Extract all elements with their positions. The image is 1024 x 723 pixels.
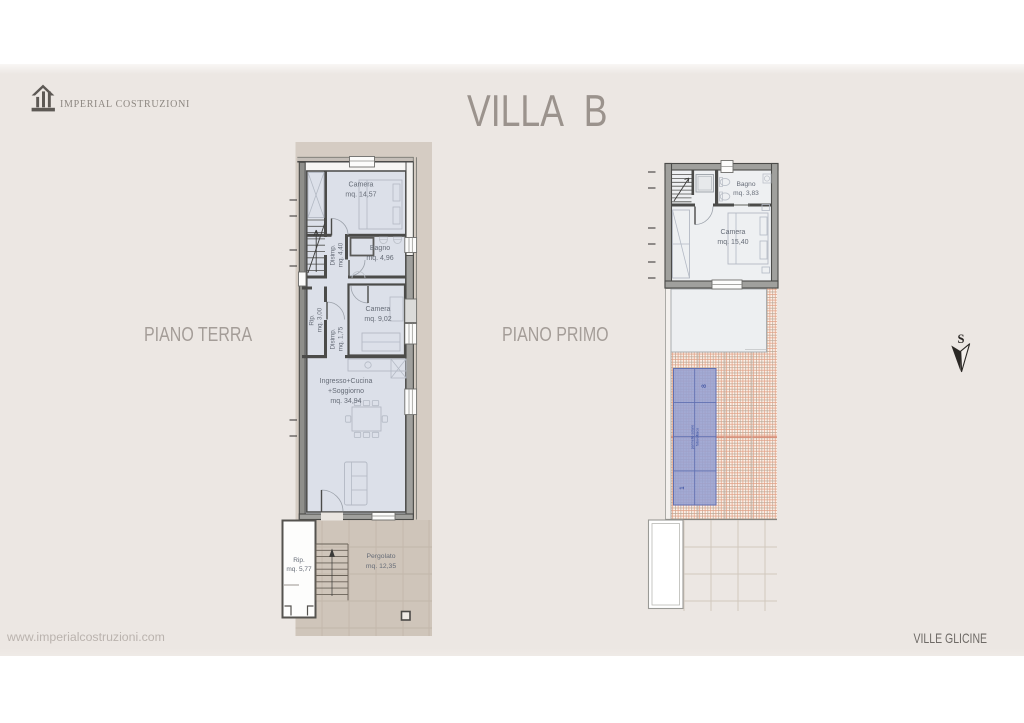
svg-text:mq. 34,94: mq. 34,94 — [330, 398, 361, 405]
svg-text:Rip.: Rip. — [293, 557, 305, 564]
svg-text:mq. 1,75: mq. 1,75 — [338, 326, 345, 351]
svg-text:+Soggiorno: +Soggiorno — [328, 388, 364, 395]
svg-text:mq. 12,35: mq. 12,35 — [366, 563, 396, 570]
svg-text:Bagno: Bagno — [736, 181, 755, 188]
svg-text:mq. 5,77: mq. 5,77 — [286, 566, 312, 573]
svg-text:mq. 3,83: mq. 3,83 — [733, 190, 759, 197]
svg-text:mq. 15,40: mq. 15,40 — [717, 239, 748, 246]
svg-text:Camera: Camera — [721, 229, 746, 236]
svg-text:pannello solare: pannello solare — [691, 425, 695, 449]
svg-text:Camera: Camera — [366, 306, 391, 313]
svg-text:mq. 9,02: mq. 9,02 — [364, 316, 391, 323]
svg-text:Disimp.: Disimp. — [330, 244, 337, 265]
svg-text:Rip.: Rip. — [309, 314, 316, 325]
svg-text:Camera: Camera — [349, 182, 374, 189]
svg-text:8: 8 — [701, 384, 708, 388]
svg-text:Ingresso+Cucina: Ingresso+Cucina — [320, 378, 373, 385]
svg-text:fotovoltaico: fotovoltaico — [696, 428, 700, 446]
svg-text:1: 1 — [679, 486, 686, 490]
svg-text:mq. 4,96: mq. 4,96 — [366, 255, 393, 262]
svg-text:mq. 3,00: mq. 3,00 — [317, 307, 324, 332]
svg-text:mq. 14,57: mq. 14,57 — [345, 192, 376, 199]
svg-text:Pergolato: Pergolato — [366, 553, 395, 560]
svg-text:Bagno: Bagno — [370, 245, 390, 252]
svg-text:Disimp.: Disimp. — [330, 328, 337, 349]
svg-text:S: S — [958, 332, 965, 346]
svg-text:mq. 4,40: mq. 4,40 — [338, 242, 345, 267]
